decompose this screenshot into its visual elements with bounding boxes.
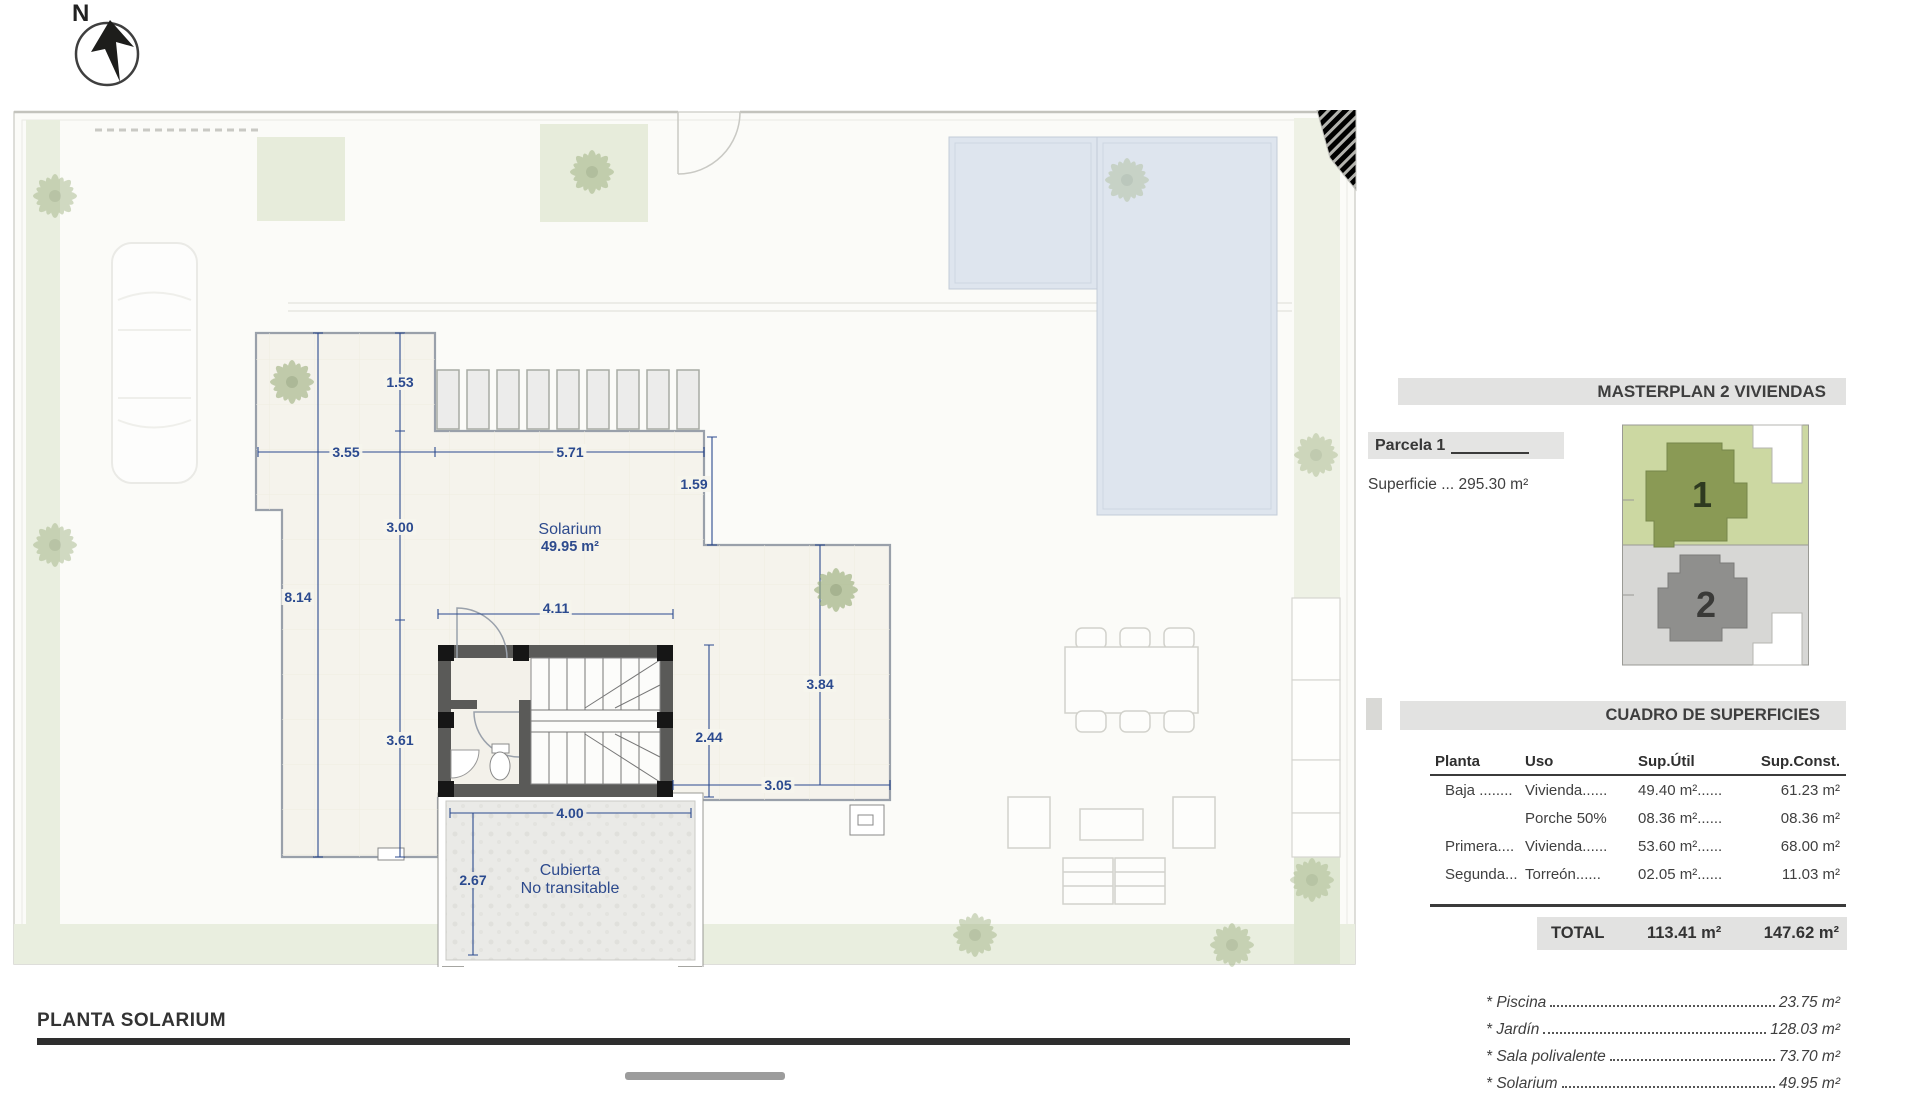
dim-2-67: 2.67	[456, 872, 489, 888]
page-title: PLANTA SOLARIUM	[37, 1010, 226, 1032]
plot-number-2: 2	[1696, 584, 1716, 625]
surfaces-table-title: CUADRO DE SUPERFICIES	[1400, 701, 1846, 730]
dim-5-71: 5.71	[553, 444, 586, 460]
side-rooms	[1292, 598, 1340, 857]
surfaces-table: Planta Uso Sup.Útil Sup.Const. Baja ....…	[1430, 748, 1846, 888]
dot-leader	[1550, 1005, 1775, 1007]
cutoff-element	[625, 1072, 785, 1080]
dim-3-55: 3.55	[329, 444, 362, 460]
siteplan-thumbnail: 1 2	[1622, 423, 1810, 669]
total-row: TOTAL 113.41 m² 147.62 m²	[1537, 917, 1847, 950]
dim-4-11: 4.11	[540, 600, 572, 616]
table-row: Porche 50% 08.36 m²...... 08.36 m²	[1430, 804, 1846, 832]
parcela-label: Parcela 1	[1368, 432, 1564, 459]
dim-8-14: 8.14	[281, 589, 314, 605]
masterplan-title: MASTERPLAN 2 VIVIENDAS	[1398, 378, 1846, 405]
car-outline	[112, 243, 197, 483]
plot-number-1: 1	[1692, 474, 1712, 515]
list-item: * Piscina 23.75 m²	[1486, 985, 1840, 1012]
extras-list: * Piscina 23.75 m² * Jardín 128.03 m² * …	[1486, 985, 1840, 1093]
north-label: N	[72, 0, 89, 27]
table-header-row: Planta Uso Sup.Útil Sup.Const.	[1430, 748, 1846, 774]
plan-drawing	[12, 110, 1357, 967]
list-item: * Jardín 128.03 m²	[1486, 1012, 1840, 1039]
dim-3-05: 3.05	[761, 777, 794, 793]
dot-leader	[1610, 1059, 1775, 1061]
dim-3-00: 3.00	[383, 519, 416, 535]
north-compass: N	[64, 0, 164, 100]
dim-3-61: 3.61	[383, 732, 416, 748]
dot-leader	[1543, 1032, 1766, 1034]
dining-set	[1065, 628, 1198, 732]
blank-line	[1451, 438, 1529, 454]
garden-patch	[257, 137, 345, 221]
total-rule	[1430, 904, 1846, 907]
cubierta-label: Cubierta No transitable	[521, 862, 620, 898]
parcela-superficie: Superficie ... 295.30 m²	[1368, 476, 1528, 494]
dim-1-53: 1.53	[383, 374, 416, 390]
dim-4-00: 4.00	[553, 805, 586, 821]
floorplan-sheet: N	[0, 0, 1920, 1080]
title-rule	[37, 1038, 1350, 1045]
dot-leader	[1562, 1086, 1775, 1088]
table-row: Baja ........ Vivienda...... 49.40 m²...…	[1430, 776, 1846, 804]
solarium-label: Solarium 49.95 m²	[538, 521, 601, 555]
list-item: * Sala polivalente 73.70 m²	[1486, 1039, 1840, 1066]
ac-unit	[850, 805, 884, 835]
stairs	[531, 658, 660, 784]
legend-box	[1366, 698, 1382, 730]
dim-3-84: 3.84	[803, 676, 836, 692]
pergola-slats	[437, 370, 699, 429]
table-row: Segunda... Torreón...... 02.05 m²...... …	[1430, 860, 1846, 888]
table-row: Primera.... Vivienda...... 53.60 m².....…	[1430, 832, 1846, 860]
dim-1-59: 1.59	[677, 476, 710, 492]
dim-2-44: 2.44	[692, 729, 725, 745]
